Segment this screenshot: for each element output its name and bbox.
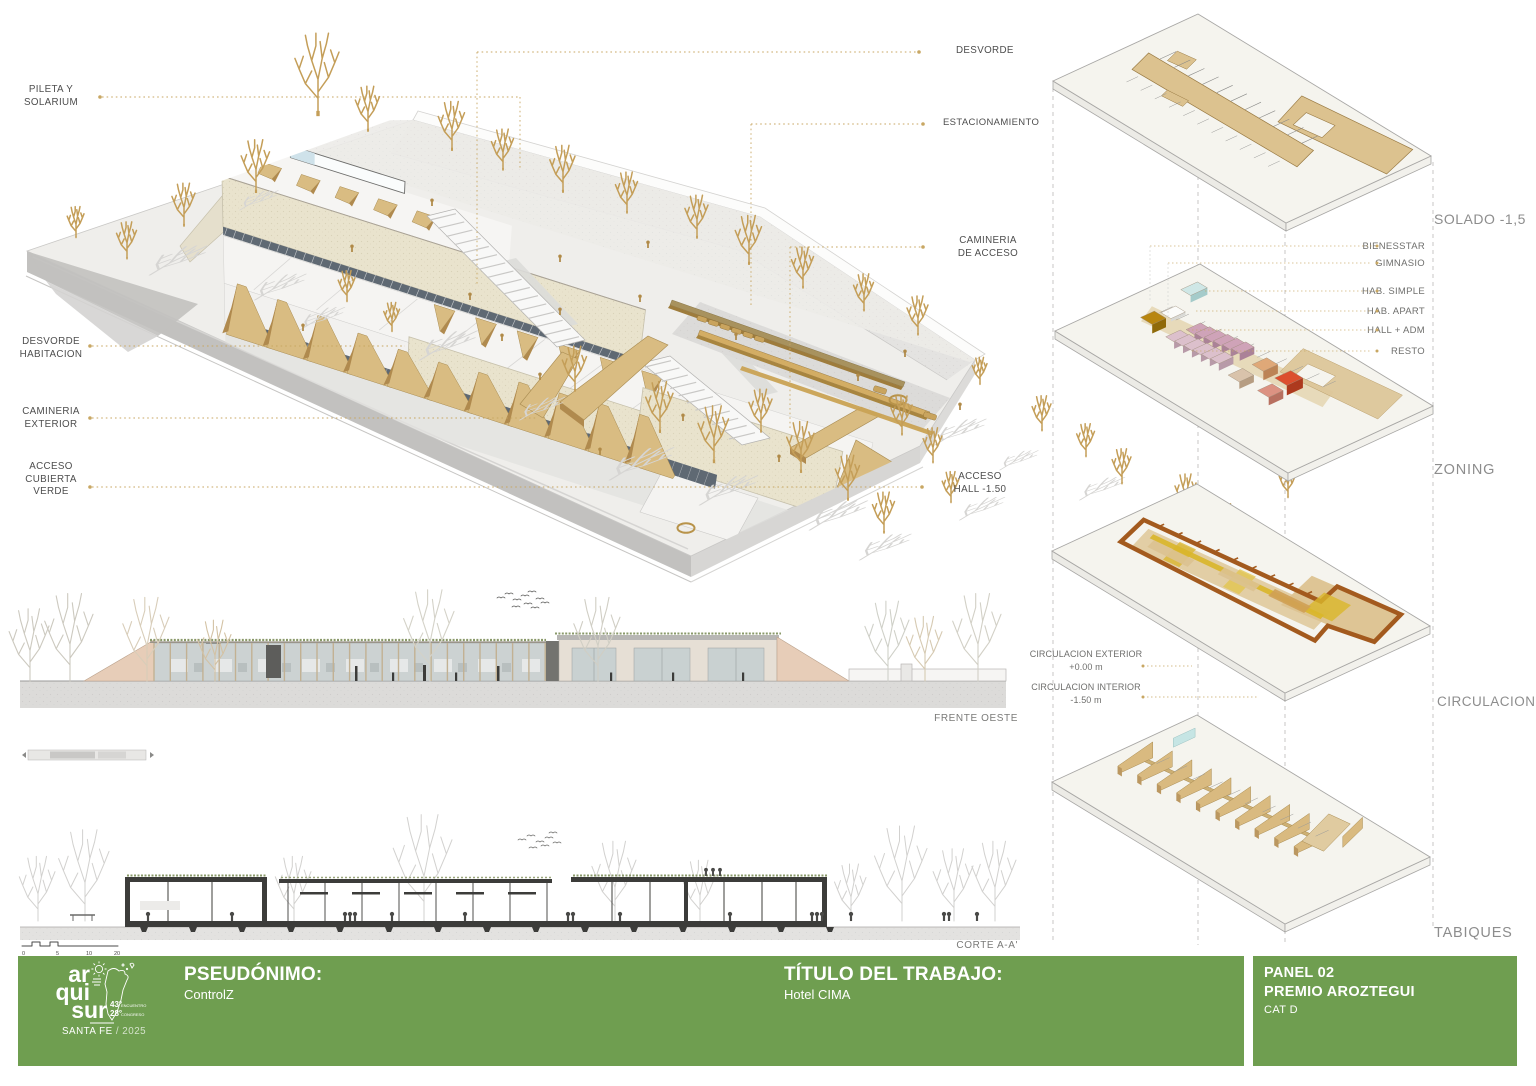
svg-text:TABIQUES: TABIQUES	[1434, 925, 1513, 941]
svg-text:SOLADO -1,5: SOLADO -1,5	[1434, 211, 1526, 227]
svg-text:HAB. SIMPLE: HAB. SIMPLE	[1362, 286, 1425, 297]
svg-text:GIMNASIO: GIMNASIO	[1375, 258, 1425, 269]
svg-text:CIRCULACION EXTERIOR: CIRCULACION EXTERIOR	[1030, 649, 1143, 659]
svg-text:sur: sur	[71, 997, 107, 1023]
svg-text:RESTO: RESTO	[1391, 346, 1425, 357]
svg-text:FRENTE OESTE: FRENTE OESTE	[934, 713, 1018, 724]
svg-text:CIRCULACION INTERIOR: CIRCULACION INTERIOR	[1031, 682, 1141, 692]
svg-text:SANTA FE / 2025: SANTA FE / 2025	[62, 1026, 146, 1037]
svg-text:CONGRESO: CONGRESO	[121, 1012, 144, 1017]
svg-text:ENCUENTRO: ENCUENTRO	[121, 1003, 146, 1008]
svg-text:CORTE A-A': CORTE A-A'	[956, 940, 1018, 951]
svg-text:-1.50 m: -1.50 m	[1070, 695, 1101, 705]
svg-text:+0.00 m: +0.00 m	[1069, 662, 1102, 672]
svg-text:CIRCULACION: CIRCULACION	[1437, 694, 1536, 709]
svg-text:BIENESSTAR: BIENESSTAR	[1363, 241, 1425, 252]
svg-text:ZONING: ZONING	[1434, 462, 1495, 478]
